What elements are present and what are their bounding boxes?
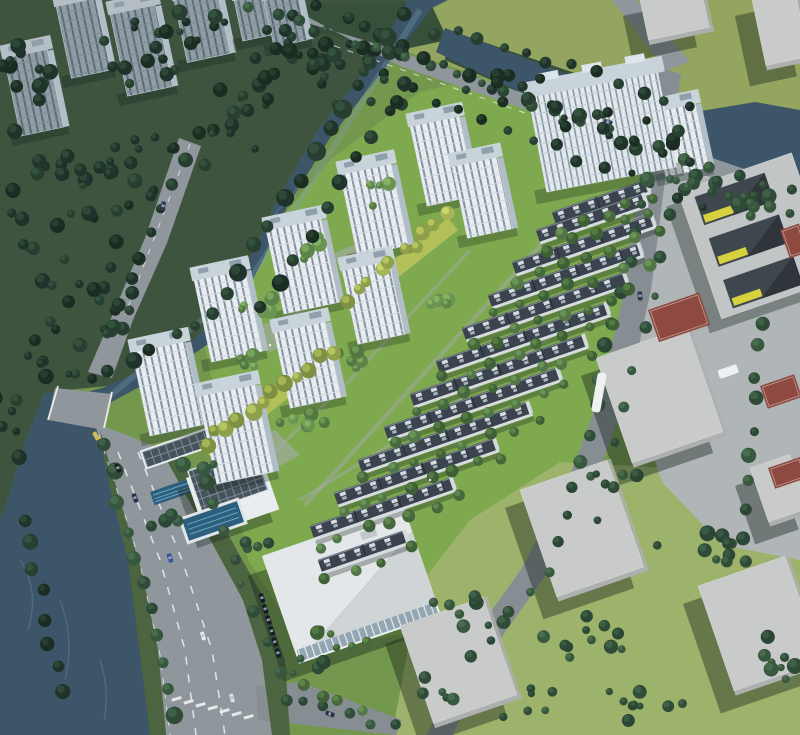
tree-highlight [321, 73, 326, 78]
tree-highlight [52, 325, 57, 330]
tree-highlight [443, 694, 447, 698]
tree-highlight [19, 240, 25, 246]
tree-highlight [102, 366, 109, 373]
tree-highlight [621, 199, 627, 205]
tree-highlight [200, 160, 206, 166]
tree-highlight [634, 686, 641, 693]
tree-highlight [741, 556, 747, 562]
tree-highlight [561, 115, 565, 119]
tree-highlight [418, 688, 424, 694]
tree-highlight [134, 253, 141, 260]
tree-highlight [333, 535, 338, 540]
tree-highlight [328, 48, 336, 56]
tree-highlight [788, 659, 796, 667]
tree-highlight [511, 324, 517, 330]
tree-highlight [328, 631, 332, 635]
tree-highlight [180, 154, 188, 162]
tree-highlight [428, 219, 435, 226]
tree-highlight [355, 285, 360, 290]
tree-highlight [458, 620, 465, 627]
tree-highlight [248, 606, 255, 613]
tree-highlight [591, 228, 598, 235]
tree-highlight [643, 117, 647, 121]
tree-highlight [498, 616, 505, 623]
tree-highlight [615, 137, 623, 145]
tree-highlight [288, 11, 294, 17]
tree-highlight [208, 499, 214, 505]
tree-highlight [238, 581, 242, 585]
tree-highlight [177, 29, 181, 33]
tree-highlight [548, 688, 553, 693]
tree-highlight [251, 363, 255, 367]
tree-highlight [619, 402, 625, 408]
person [269, 344, 272, 347]
tree-highlight [333, 176, 341, 184]
tree-highlight [163, 684, 169, 690]
tree-highlight [638, 201, 643, 206]
tree-highlight [177, 458, 185, 466]
tree-highlight [328, 347, 336, 355]
tree-highlight [40, 370, 48, 378]
tree-highlight [468, 371, 473, 376]
tree-highlight [159, 55, 164, 60]
tree-highlight [725, 192, 730, 197]
tree-highlight [110, 496, 118, 504]
tree-highlight [605, 211, 611, 217]
tree-highlight [241, 537, 247, 543]
tree-highlight [290, 670, 294, 674]
tree-highlight [68, 210, 72, 214]
tree-highlight [269, 69, 275, 75]
tree-highlight [588, 636, 593, 641]
tree-highlight [516, 350, 522, 356]
tree-highlight [368, 183, 372, 187]
tree-highlight [386, 106, 392, 112]
tree-highlight [612, 439, 616, 443]
tree-highlight [619, 646, 623, 650]
tree-highlight [654, 141, 661, 148]
tree-highlight [219, 422, 228, 431]
tree-highlight [616, 287, 623, 294]
tree-highlight [628, 367, 633, 372]
tree-highlight [428, 472, 434, 478]
tree-highlight [623, 283, 630, 290]
tree-highlight [588, 278, 594, 284]
tree-highlight [598, 338, 606, 346]
tree-highlight [434, 422, 440, 428]
tree-highlight [605, 246, 612, 253]
tree-highlight [462, 413, 468, 419]
tree-highlight [381, 76, 386, 81]
tree-highlight [416, 227, 424, 235]
tree-highlight [377, 559, 382, 564]
tree-highlight [607, 296, 613, 302]
tree-highlight [352, 346, 359, 353]
tree-highlight [131, 18, 136, 23]
tree-highlight [656, 227, 662, 233]
tree-highlight [309, 143, 319, 153]
tree-highlight [391, 437, 397, 443]
tree-highlight [66, 371, 70, 375]
tree-highlight [401, 53, 406, 58]
tree-highlight [571, 156, 577, 162]
tree-highlight [48, 282, 53, 287]
tree-highlight [690, 170, 697, 177]
tree-highlight [12, 81, 19, 88]
tree-highlight [540, 390, 545, 395]
tree-highlight [673, 126, 680, 133]
tree-highlight [437, 450, 442, 455]
tree-highlight [433, 99, 438, 104]
tree-highlight [209, 10, 217, 18]
tree-highlight [587, 472, 592, 477]
tree-highlight [289, 414, 294, 419]
tree-highlight [99, 439, 106, 446]
tree-highlight [716, 530, 723, 537]
tree-highlight [750, 373, 756, 379]
tree-highlight [594, 517, 598, 521]
tree-highlight [673, 177, 677, 181]
tree-highlight [208, 308, 215, 315]
tree-highlight [39, 585, 45, 591]
tree-highlight [358, 706, 363, 711]
tree-highlight [308, 49, 314, 55]
tree-highlight [448, 694, 455, 701]
tree-highlight [737, 533, 744, 540]
tree-highlight [274, 10, 280, 16]
tree-highlight [7, 57, 12, 62]
tree-highlight [9, 407, 13, 411]
tree-highlight [538, 631, 545, 638]
tree-highlight [44, 65, 52, 73]
tree-highlight [536, 416, 541, 421]
tree-highlight [660, 97, 665, 102]
tree-highlight [516, 300, 521, 305]
tree-highlight [765, 663, 773, 671]
tree-highlight [151, 630, 158, 637]
tree-highlight [567, 483, 573, 489]
tree-highlight [575, 456, 582, 463]
tree-highlight [407, 483, 414, 490]
tree-highlight [264, 538, 270, 544]
tree-highlight [352, 566, 358, 572]
tree-highlight [655, 252, 662, 259]
tree-highlight [629, 170, 633, 174]
tree-highlight [360, 22, 366, 28]
tree-highlight [488, 637, 492, 641]
tree-highlight [128, 552, 136, 560]
tree-highlight [563, 279, 570, 286]
tree-highlight [127, 273, 134, 280]
tree-highlight [582, 253, 588, 259]
tree-highlight [564, 511, 569, 516]
tree-highlight [126, 80, 131, 85]
tree-highlight [214, 84, 222, 92]
tree-highlight [100, 37, 105, 42]
tree-highlight [429, 29, 436, 36]
tree-highlight [210, 461, 214, 465]
tree-highlight [445, 600, 451, 606]
tree-highlight [284, 39, 289, 44]
tree-highlight [713, 177, 719, 183]
tree-highlight [407, 542, 413, 548]
tree-highlight [255, 302, 261, 308]
tree-highlight [247, 349, 255, 357]
tree-highlight [413, 408, 418, 413]
tree-highlight [433, 296, 439, 302]
tree-highlight [293, 373, 298, 378]
tree-highlight [40, 615, 47, 622]
tree-highlight [317, 544, 322, 549]
tree-highlight [132, 25, 136, 29]
tree-highlight [342, 296, 350, 304]
tree-highlight [747, 199, 752, 204]
tree-highlight [228, 107, 235, 114]
tree-highlight [708, 189, 713, 194]
tree-highlight [455, 490, 461, 496]
tree-highlight [167, 179, 173, 185]
tree-highlight [376, 182, 380, 186]
tree-highlight [583, 627, 587, 631]
tree-highlight [645, 260, 652, 267]
tree-highlight [352, 41, 357, 46]
tree-highlight [61, 256, 66, 261]
tree-highlight [752, 339, 759, 346]
tree-highlight [56, 168, 64, 176]
tree-highlight [95, 162, 102, 169]
tree-highlight [362, 277, 367, 282]
tree-highlight [323, 202, 330, 209]
tree-highlight [472, 33, 479, 40]
tree-highlight [620, 698, 624, 702]
tree-highlight [474, 457, 479, 462]
tree-highlight [107, 263, 113, 269]
tree-highlight [619, 263, 625, 269]
tree-highlight [781, 653, 786, 658]
tree-highlight [439, 399, 445, 405]
tree-highlight [512, 278, 519, 285]
tree-highlight [323, 26, 327, 30]
tree-highlight [530, 137, 534, 141]
tree-highlight [88, 283, 96, 291]
tree-highlight [504, 607, 510, 613]
tree-highlight [626, 257, 632, 263]
tree-highlight [542, 246, 548, 252]
car-windshield [638, 294, 641, 297]
tree-highlight [226, 119, 233, 126]
tree-highlight [630, 701, 635, 706]
tree-highlight [264, 385, 272, 393]
tree-highlight [346, 41, 350, 45]
tree-highlight [9, 125, 17, 133]
tree-highlight [41, 638, 48, 645]
tree-highlight [524, 707, 529, 712]
tree-highlight [531, 339, 537, 345]
tree-highlight [679, 700, 684, 705]
tree-highlight [12, 39, 20, 47]
tree-highlight [621, 215, 626, 220]
tree-highlight [354, 81, 360, 87]
tree-highlight [427, 299, 433, 305]
tree-highlight [664, 701, 670, 707]
tree-highlight [489, 385, 494, 390]
tree-highlight [305, 421, 311, 427]
tree-highlight [484, 408, 490, 414]
tree-highlight [147, 521, 153, 527]
tree-highlight [345, 13, 350, 18]
tree-highlight [593, 110, 599, 116]
tree-highlight [167, 708, 176, 717]
tree-highlight [391, 96, 398, 103]
tree-highlight [614, 79, 620, 85]
tree-highlight [556, 359, 562, 365]
tree-highlight [263, 26, 268, 31]
tree-highlight [131, 136, 136, 141]
tree-highlight [263, 94, 269, 100]
tree-highlight [334, 645, 338, 649]
tree-highlight [271, 43, 278, 50]
tree-highlight [466, 651, 473, 658]
tree-highlight [383, 46, 391, 54]
tree-highlight [527, 588, 531, 592]
tree-highlight [641, 322, 648, 329]
tree-highlight [747, 212, 752, 217]
tree-highlight [679, 154, 686, 161]
tree-highlight [504, 127, 509, 132]
tree-highlight [469, 339, 476, 346]
tree-highlight [227, 130, 231, 134]
tree-highlight [609, 320, 615, 326]
tree-highlight [119, 62, 127, 70]
tree-highlight [336, 60, 342, 66]
tree-highlight [311, 627, 318, 634]
tree-highlight [159, 658, 165, 664]
tree-highlight [724, 550, 730, 556]
tree-highlight [320, 574, 326, 580]
tree-highlight [309, 59, 315, 65]
tree-highlight [33, 79, 41, 87]
tree-highlight [684, 183, 689, 188]
tree-highlight [380, 29, 390, 39]
tree-highlight [349, 643, 353, 647]
tree-highlight [686, 158, 691, 163]
tree-highlight [320, 38, 328, 46]
tree-highlight [701, 527, 709, 535]
tree-highlight [504, 70, 511, 77]
tree-highlight [251, 53, 257, 59]
tree-highlight [735, 171, 741, 177]
tree-highlight [439, 689, 443, 693]
tree-highlight [632, 470, 639, 477]
tree-highlight [522, 93, 529, 100]
tree-highlight [299, 697, 304, 702]
tree-highlight [160, 26, 168, 34]
tree-highlight [318, 656, 326, 664]
tree-highlight [364, 57, 371, 64]
tree-highlight [107, 158, 111, 162]
tree-highlight [778, 664, 782, 668]
tree-highlight [378, 494, 383, 499]
tree-highlight [566, 653, 571, 658]
tree-highlight [743, 449, 751, 457]
tree-highlight [364, 521, 371, 528]
tree-highlight [83, 207, 91, 215]
tree-highlight [152, 134, 156, 138]
tree-highlight [665, 209, 672, 216]
tree-highlight [209, 131, 213, 135]
tree-highlight [535, 267, 541, 273]
tree-highlight [485, 359, 491, 365]
car [637, 291, 642, 300]
tree-highlight [185, 37, 192, 44]
tree-highlight [191, 322, 196, 327]
tree-highlight [126, 157, 133, 164]
tree-highlight [276, 669, 280, 673]
tree-highlight [554, 537, 560, 543]
tree-highlight [147, 228, 152, 233]
tree-highlight [560, 310, 566, 316]
tree-highlight [239, 91, 244, 96]
tree-highlight [384, 518, 390, 524]
tree-highlight [62, 150, 69, 157]
tree-highlight [34, 155, 41, 162]
tree-highlight [456, 610, 461, 615]
tree-highlight [605, 641, 612, 648]
tree-highlight [351, 152, 357, 158]
tree-highlight [201, 476, 209, 484]
tree-highlight [744, 476, 750, 482]
tree-highlight [788, 185, 793, 190]
tree-highlight [551, 102, 558, 109]
tree-highlight [166, 510, 173, 517]
tree-highlight [741, 504, 747, 510]
tree-highlight [13, 451, 21, 459]
tree-highlight [26, 564, 33, 571]
tree-highlight [318, 692, 324, 698]
tree-highlight [382, 257, 389, 264]
tree-highlight [613, 628, 619, 634]
tree-highlight [541, 58, 547, 64]
tree-highlight [750, 392, 758, 400]
tree-highlight [667, 176, 671, 180]
tree-highlight [248, 238, 256, 246]
tree-highlight [485, 622, 489, 626]
tree-highlight [20, 516, 27, 523]
tree-highlight [148, 604, 154, 610]
tree-highlight [398, 8, 406, 16]
tree-highlight [759, 650, 766, 657]
tree-highlight [259, 398, 265, 404]
tree-highlight [542, 707, 546, 711]
tree-highlight [389, 463, 395, 469]
tree-highlight [280, 25, 287, 32]
tree-highlight [325, 122, 333, 130]
tree-highlight [582, 611, 588, 617]
tree-highlight [108, 321, 116, 329]
tree-highlight [606, 689, 610, 693]
tree-highlight [173, 329, 178, 334]
tree-highlight [8, 209, 13, 214]
tree-highlight [194, 127, 201, 134]
tree-highlight [567, 233, 573, 239]
tree-highlight [365, 131, 372, 138]
tree-highlight [112, 206, 118, 212]
tree-highlight [282, 696, 288, 702]
tree-highlight [103, 330, 108, 335]
tree-highlight [209, 426, 215, 432]
tree-highlight [252, 146, 256, 150]
tree-highlight [301, 244, 309, 252]
